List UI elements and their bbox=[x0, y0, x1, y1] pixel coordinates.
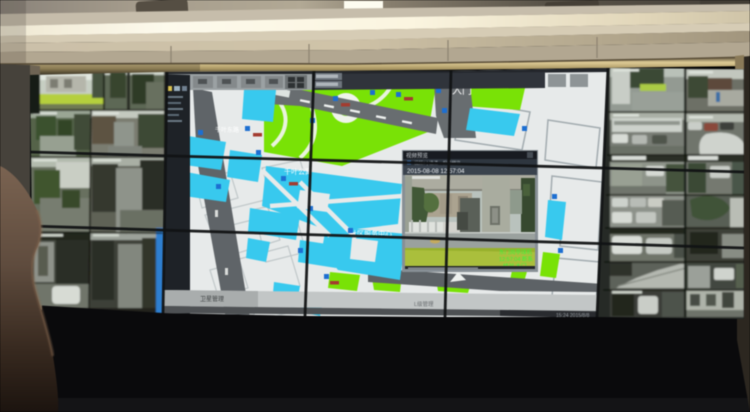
svg-text:2015-08-08 12:57:04: 2015-08-08 12:57:04 bbox=[407, 168, 465, 175]
svg-text:L级管理: L级管理 bbox=[414, 300, 434, 308]
svg-text:视频预览: 视频预览 bbox=[406, 152, 429, 160]
svg-text:千叶公寓: 千叶公寓 bbox=[284, 167, 312, 176]
svg-text:12:57:04 断系: 12:57:04 断系 bbox=[499, 255, 533, 263]
svg-text:东门岗亭球机: 东门岗亭球机 bbox=[499, 248, 533, 256]
svg-text:卫星管理: 卫星管理 bbox=[200, 295, 224, 303]
svg-text:千叶东路: 千叶东路 bbox=[215, 126, 239, 134]
